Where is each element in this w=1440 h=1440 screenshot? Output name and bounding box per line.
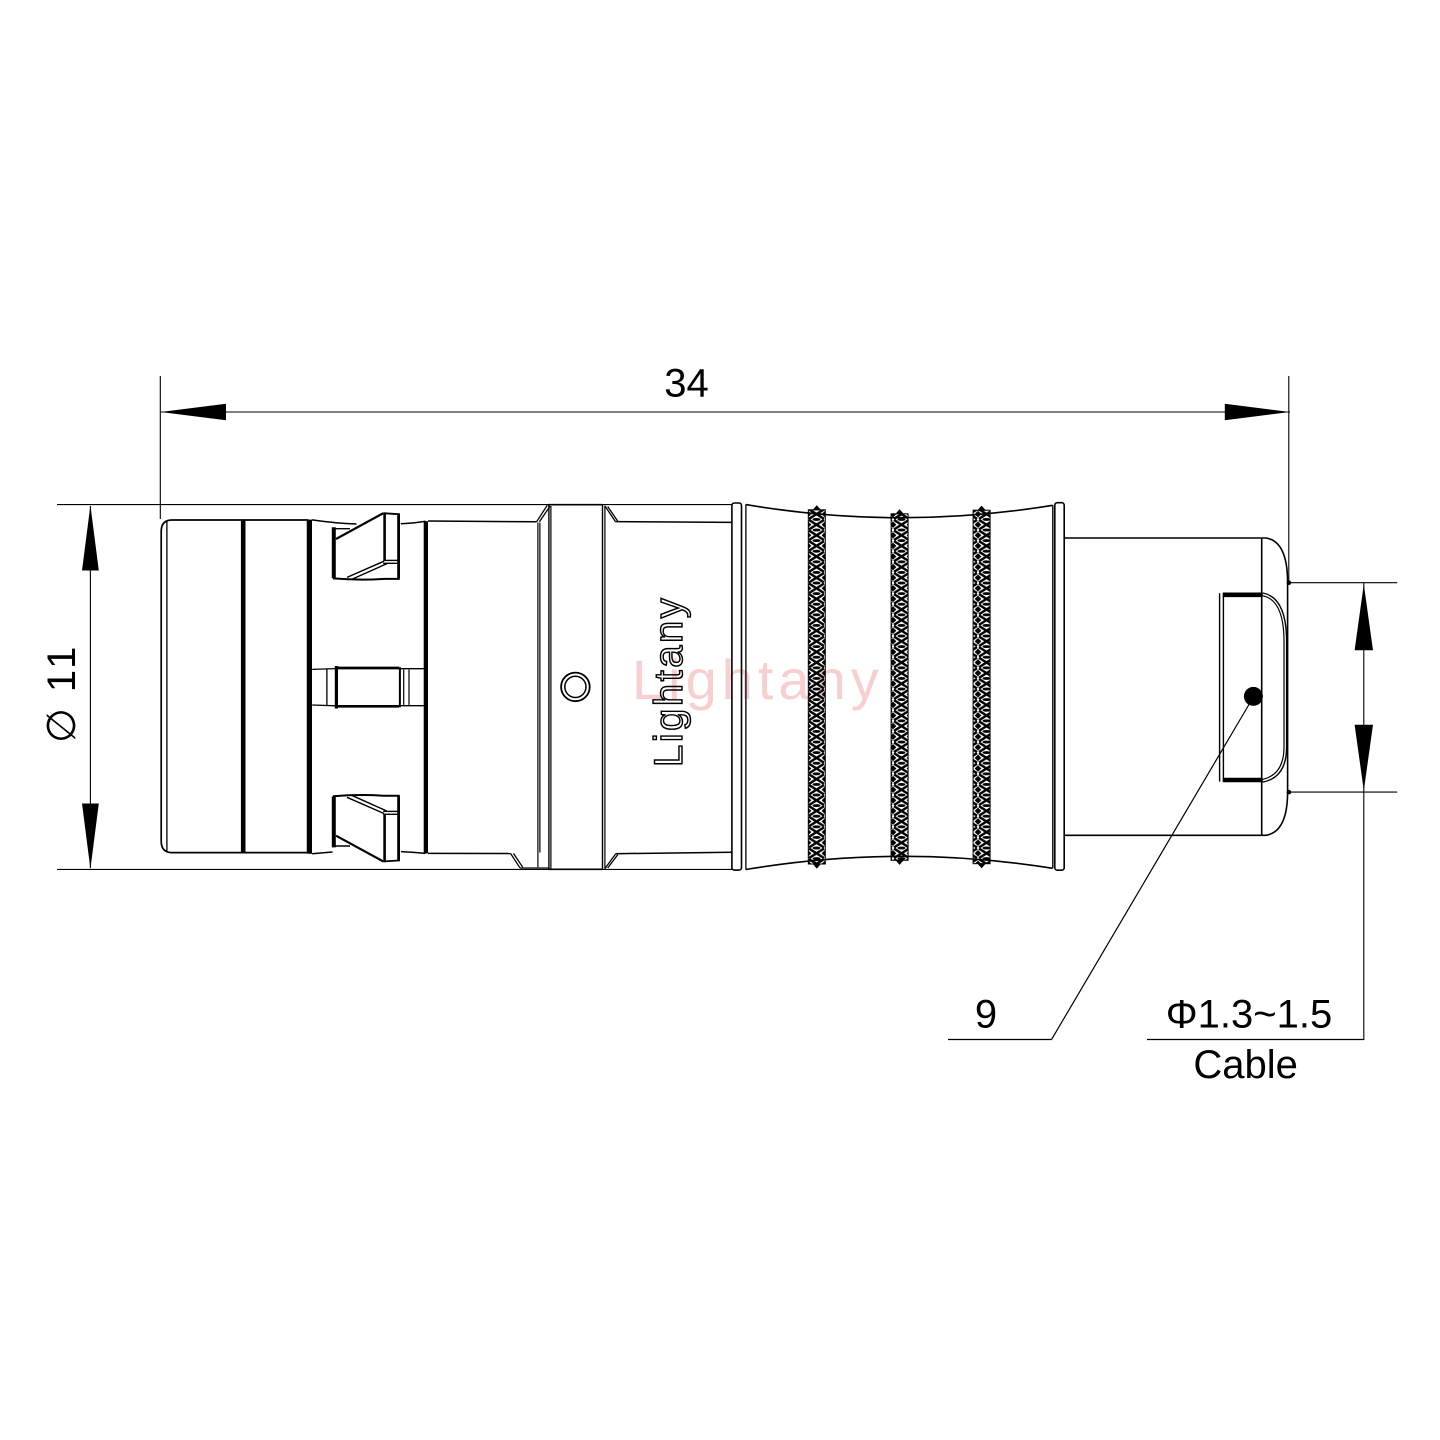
svg-text:Φ1.3~1.5: Φ1.3~1.5 [1166, 993, 1332, 1037]
svg-text:Cable: Cable [1193, 1043, 1298, 1087]
svg-text:Lightany: Lightany [647, 596, 691, 767]
svg-text:∅11: ∅11 [40, 643, 84, 743]
svg-text:9: 9 [975, 993, 997, 1037]
svg-text:34: 34 [664, 362, 709, 406]
